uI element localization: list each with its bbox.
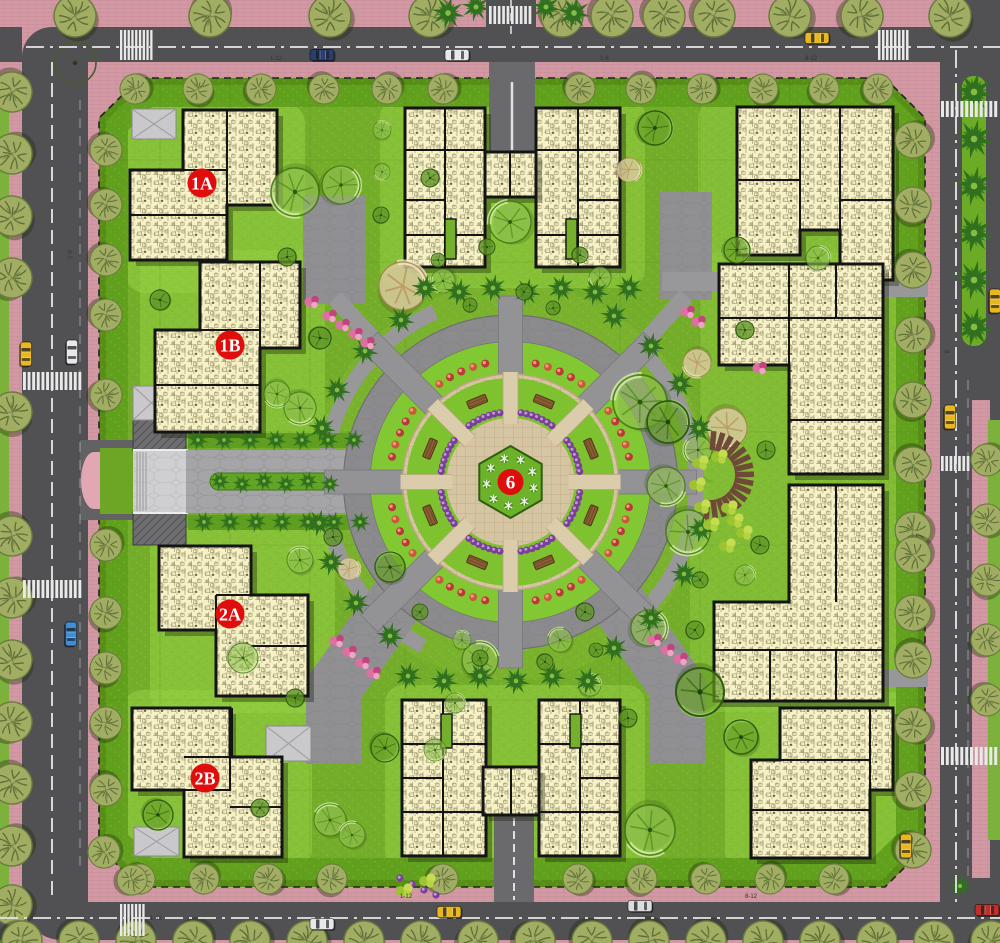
svg-text:1-12: 1-12 — [270, 56, 283, 62]
svg-text:1A: 1A — [191, 173, 213, 193]
svg-text:6: 6 — [506, 473, 516, 494]
svg-text:8-12: 8-12 — [745, 894, 758, 900]
svg-text:1-12: 1-12 — [400, 894, 413, 900]
svg-text:2A: 2A — [219, 604, 241, 624]
svg-text:1-8: 1-8 — [600, 56, 609, 62]
svg-text:2B: 2B — [194, 768, 215, 788]
svg-text:8-1: 8-1 — [66, 250, 72, 259]
svg-text:8-12: 8-12 — [805, 56, 818, 62]
svg-text:1-12: 1-12 — [150, 916, 163, 922]
svg-text:1B: 1B — [219, 335, 240, 355]
